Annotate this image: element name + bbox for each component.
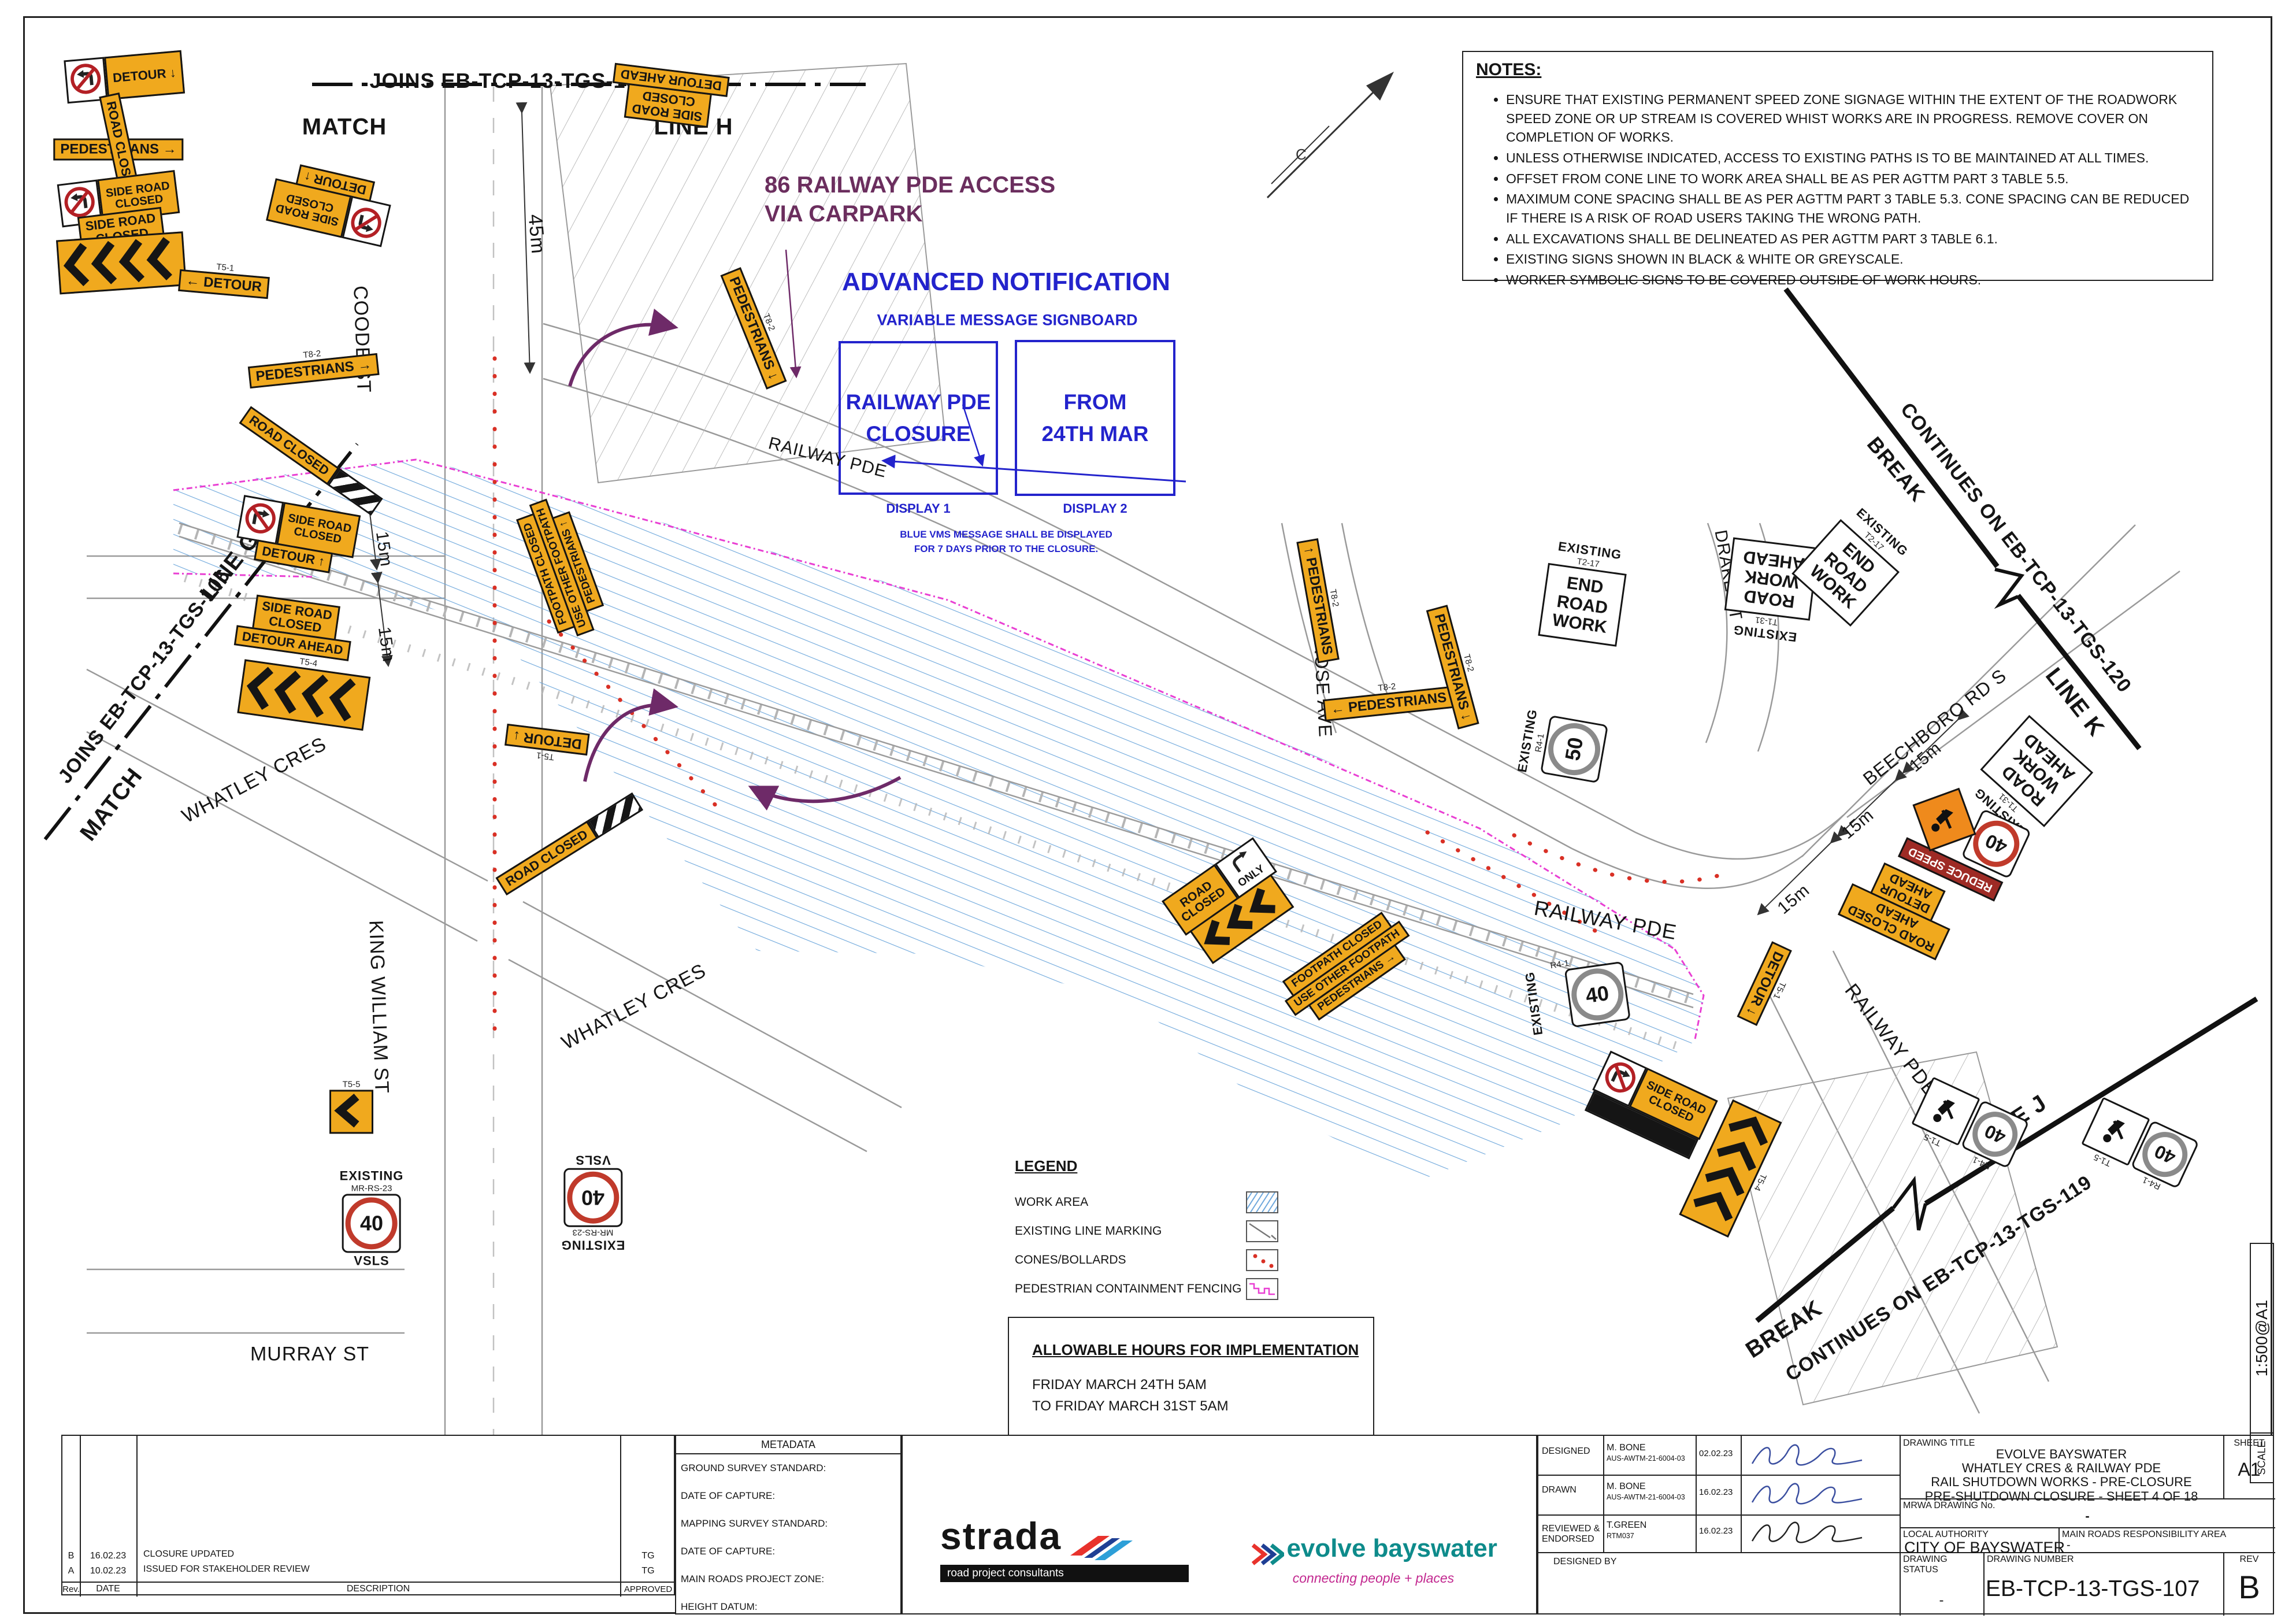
sign-tag: T5-5 xyxy=(343,1080,361,1088)
local-authority-cell: LOCAL AUTHORITY CITY OF BAYSWATER xyxy=(1900,1527,2058,1552)
vms-display1-line2: CLOSURE xyxy=(866,418,971,450)
note-item: WORKER SYMBOLIC SIGNS TO BE COVERED OUTS… xyxy=(1506,271,2199,290)
map-label: MATCH xyxy=(302,114,387,140)
map-label: JOINS EB-TCP-13-TGS-108 xyxy=(369,69,650,93)
sign-chevron-board-top-left xyxy=(56,231,187,294)
notes-title: NOTES: xyxy=(1476,60,2199,80)
vms-display1-line1: RAILWAY PDE xyxy=(846,386,991,419)
metadata-field: DATE OF CAPTURE: xyxy=(676,1538,900,1565)
scale-label: SCALE xyxy=(2256,1440,2268,1475)
legend-item: EXISTING LINE MARKING xyxy=(1015,1217,1373,1246)
drawing-number-cell: DRAWING NUMBER EB-TCP-13-TGS-107 xyxy=(1983,1552,2223,1616)
evolve-logo: evolve bayswater connecting people + pla… xyxy=(1249,1534,1497,1586)
note-item: ALL EXCAVATIONS SHALL BE DELINEATED AS P… xyxy=(1506,229,2199,249)
drawing-status-cell: DRAWING STATUS - xyxy=(1900,1552,1983,1616)
scale-value-cell: 1:500@A1 xyxy=(2250,1243,2274,1434)
signature xyxy=(1746,1479,1885,1512)
allowable-hours-box: ALLOWABLE HOURS FOR IMPLEMENTATION FRIDA… xyxy=(1008,1317,1374,1454)
scale-value: 1:500@A1 xyxy=(2253,1300,2271,1377)
legend-item-label: PEDESTRIAN CONTAINMENT FENCING xyxy=(1015,1282,1246,1296)
drawing-number-label: DRAWING NUMBER xyxy=(1983,1552,2223,1567)
sign-existing-road-work-ahead-drake: EXISTINGT1-31ROADWORKAHEAD xyxy=(1722,538,1819,646)
metadata-title: METADATA xyxy=(676,1436,900,1454)
legend-item: PEDESTRIAN CONTAINMENT FENCING xyxy=(1015,1275,1373,1303)
revision-header-rev: Rev. xyxy=(62,1582,80,1597)
vms-note-line2: FOR 7 DAYS PRIOR TO THE CLOSURE. xyxy=(914,543,1098,555)
legend: LEGEND WORK AREAEXISTING LINE MARKINGCON… xyxy=(1015,1157,1373,1303)
logos-panel: strada road project consultants evolve b… xyxy=(902,1435,1537,1614)
metadata-field: DATE OF CAPTURE: xyxy=(676,1482,900,1510)
notes-list: ENSURE THAT EXISTING PERMANENT SPEED ZON… xyxy=(1476,90,2199,290)
designed-by-label: DESIGNED BY xyxy=(1550,1554,1620,1569)
signature xyxy=(1746,1440,1885,1473)
access-note: 86 RAILWAY PDE ACCESS VIA CARPARK xyxy=(765,171,1055,228)
legend-item-label: EXISTING LINE MARKING xyxy=(1015,1224,1246,1238)
note-item: EXISTING SIGNS SHOWN IN BLACK & WHITE OR… xyxy=(1506,250,2199,269)
note-item: ENSURE THAT EXISTING PERMANENT SPEED ZON… xyxy=(1506,90,2199,147)
vms-display2-line1: FROM xyxy=(1064,386,1127,419)
map-label: MURRAY ST xyxy=(250,1343,369,1366)
strada-logo-subtitle: road project consultants xyxy=(940,1565,1189,1582)
metadata-field: HEIGHT DATUM: xyxy=(676,1593,900,1621)
metadata-fields: GROUND SURVEY STANDARD:DATE OF CAPTURE:M… xyxy=(676,1454,900,1621)
strada-logo-text: strada xyxy=(940,1514,1062,1557)
evolve-logo-text: evolve bayswater xyxy=(1286,1534,1497,1562)
sign-chevron-small-king-william: T5-5 xyxy=(329,1080,373,1134)
metadata-field: GROUND SURVEY STANDARD: xyxy=(676,1454,900,1482)
evolve-logo-tagline: connecting people + places xyxy=(1249,1571,1497,1586)
vms-caption-2: DISPLAY 2 xyxy=(1063,501,1127,516)
worker-symbol-icon xyxy=(1912,788,1976,851)
revision-header-approved: APPROVED xyxy=(620,1582,676,1597)
rev-label: REV xyxy=(2223,1552,2275,1567)
vms-caption-1: DISPLAY 1 xyxy=(886,501,950,516)
no-right-turn-icon xyxy=(236,495,284,545)
legend-item-label: CONES/BOLLARDS xyxy=(1015,1253,1246,1267)
allowable-hours-line1: FRIDAY MARCH 24TH 5AM xyxy=(1032,1374,1373,1395)
drawing-title-line: WHATLEY CRES & RAILWAY PDE xyxy=(1900,1461,2223,1475)
revision-header-description: DESCRIPTION xyxy=(136,1582,620,1597)
rev-value: B xyxy=(2223,1568,2275,1606)
drawing-title-cell: DRAWING TITLE EVOLVE BAYSWATERWHATLEY CR… xyxy=(1900,1436,2223,1498)
note-item: OFFSET FROM CONE LINE TO WORK AREA SHALL… xyxy=(1506,169,2199,188)
metadata-panel: METADATA GROUND SURVEY STANDARD:DATE OF … xyxy=(675,1435,902,1614)
revision-table: B16.02.23CLOSURE UPDATEDTGA10.02.23ISSUE… xyxy=(61,1435,675,1595)
legend-item-label: WORK AREA xyxy=(1015,1195,1246,1209)
revision-header-date: DATE xyxy=(80,1582,136,1597)
access-note-line2: VIA CARPARK xyxy=(765,199,1055,228)
metadata-field: MAPPING SURVEY STANDARD: xyxy=(676,1510,900,1538)
vms-display-2: FROM 24TH MAR xyxy=(1015,340,1175,496)
sign-tag: T5-1 xyxy=(216,262,235,273)
vms-title: ADVANCED NOTIFICATION xyxy=(842,268,1170,297)
drawing-title-lines: EVOLVE BAYSWATERWHATLEY CRES & RAILWAY P… xyxy=(1900,1447,2223,1504)
metadata-field: MAIN ROADS PROJECT ZONE: xyxy=(676,1565,900,1593)
legend-title: LEGEND xyxy=(1015,1157,1373,1175)
scale-label-cell: SCALE xyxy=(2250,1432,2274,1483)
sign-tag: T8-2 xyxy=(303,349,321,360)
sign-existing-40-vsls-2: EXISTINGMR-RS-2340VSLS xyxy=(561,1153,625,1251)
vms-display2-line2: 24TH MAR xyxy=(1041,418,1148,450)
mrra-cell: MAIN ROADS RESPONSIBILITY AREA - xyxy=(2058,1527,2275,1552)
sign-tag: MR-RS-23 xyxy=(351,1184,392,1193)
legend-item: WORK AREA xyxy=(1015,1188,1373,1217)
drawing-status-label: DRAWING STATUS xyxy=(1900,1552,1983,1577)
legend-swatch-work-area xyxy=(1246,1191,1278,1213)
titleblock-right: DESIGNEDM. BONEAUS-AWTM-21-6004-0302.02.… xyxy=(1537,1435,2274,1614)
drawing-title-line: EVOLVE BAYSWATER xyxy=(1900,1447,2223,1461)
notes-box: NOTES: ENSURE THAT EXISTING PERMANENT SP… xyxy=(1462,51,2213,281)
legend-swatch-cones xyxy=(1246,1249,1278,1271)
mrra-value: - xyxy=(2058,1539,2275,1552)
drawing-number-value: EB-TCP-13-TGS-107 xyxy=(1983,1576,2223,1602)
sign-tag: MR-RS-23 xyxy=(573,1228,614,1237)
legend-item: CONES/BOLLARDS xyxy=(1015,1246,1373,1275)
sign-tag: T1-31 xyxy=(1755,615,1778,627)
sign-tag: T5-4 xyxy=(299,657,318,668)
vms-note-line1: BLUE VMS MESSAGE SHALL BE DISPLAYED xyxy=(900,529,1112,540)
drawing-title-line: RAIL SHUTDOWN WORKS - PRE-CLOSURE xyxy=(1900,1475,2223,1489)
sign-tag: T5-1 xyxy=(536,750,554,761)
strada-logo-swoosh-icon xyxy=(1064,1530,1134,1564)
allowable-hours-title: ALLOWABLE HOURS FOR IMPLEMENTATION xyxy=(1032,1341,1373,1359)
legend-swatch-line-marking xyxy=(1246,1220,1278,1242)
map-label: 45m xyxy=(524,213,550,255)
mrwa-cell: MRWA DRAWING No. - xyxy=(1900,1498,2275,1527)
access-note-line1: 86 RAILWAY PDE ACCESS xyxy=(765,171,1055,199)
allowable-hours-line2: TO FRIDAY MARCH 31ST 5AM xyxy=(1032,1395,1373,1417)
evolve-logo-arrow-icon xyxy=(1249,1542,1284,1567)
sign-existing-end-road-work: EXISTINGT2-17ENDROADWORK xyxy=(1538,538,1630,646)
signature xyxy=(1746,1518,1885,1551)
vms-subtitle: VARIABLE MESSAGE SIGNBOARD xyxy=(877,312,1137,329)
sign-tag: T8-2 xyxy=(1378,682,1396,693)
sign-existing-40-vsls: EXISTINGMR-RS-2340VSLS xyxy=(340,1169,404,1268)
legend-items: WORK AREAEXISTING LINE MARKINGCONES/BOLL… xyxy=(1015,1188,1373,1303)
note-item: UNLESS OTHERWISE INDICATED, ACCESS TO EX… xyxy=(1506,149,2199,168)
strada-logo: strada road project consultants xyxy=(940,1514,1189,1582)
rev-cell: REV B xyxy=(2223,1552,2275,1616)
drawing-status-value: - xyxy=(1900,1593,1983,1609)
legend-swatch-fencing xyxy=(1246,1278,1278,1300)
note-item: MAXIMUM CONE SPACING SHALL BE AS PER AGT… xyxy=(1506,190,2199,227)
